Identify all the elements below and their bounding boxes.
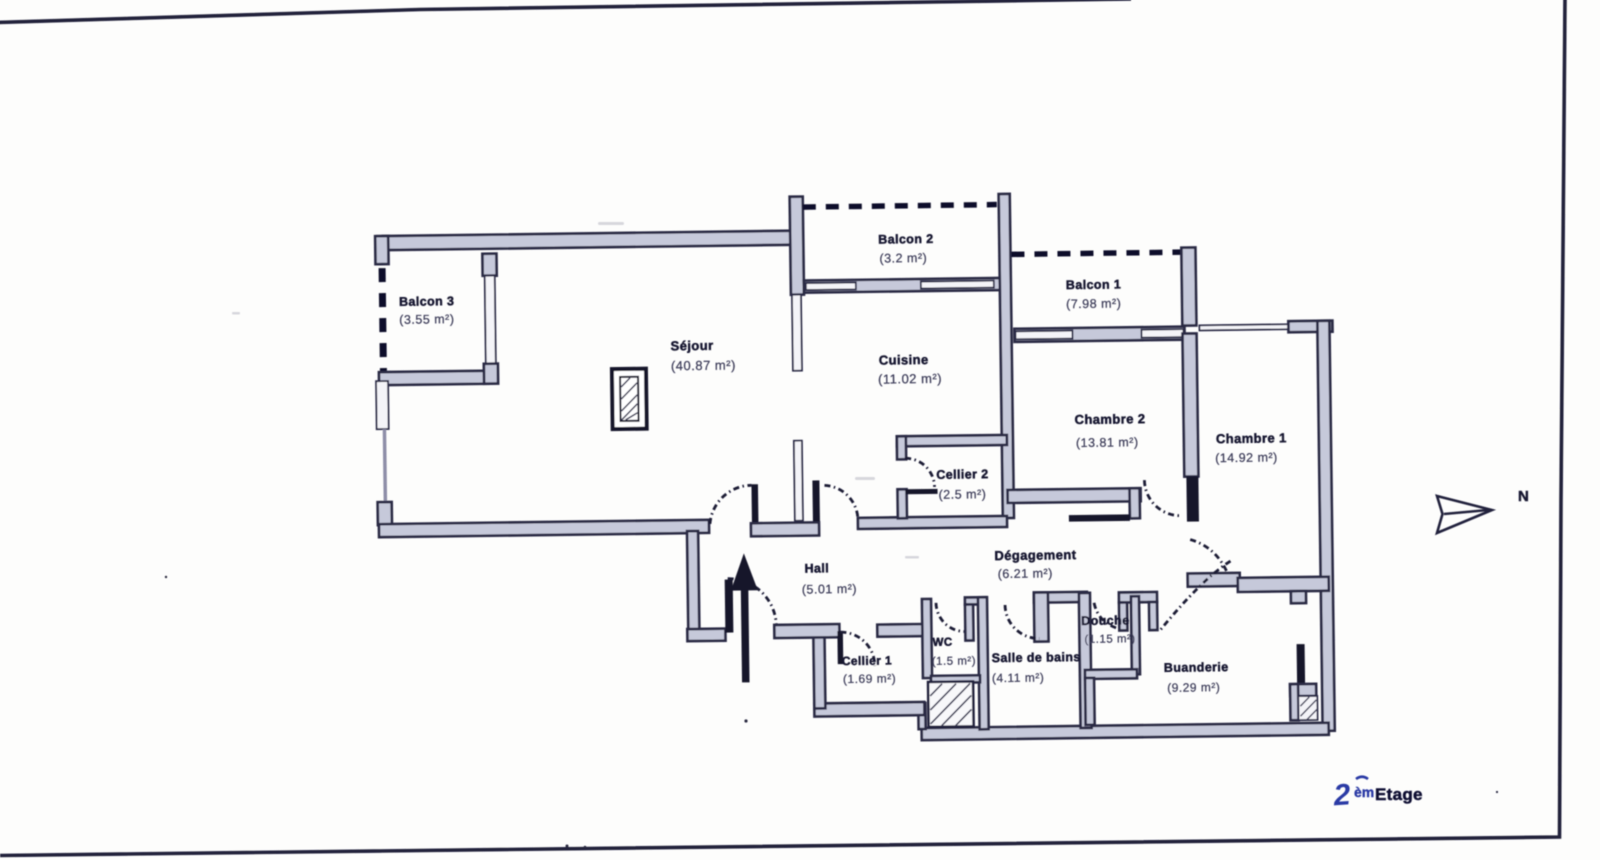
svg-text:(1.5 m²): (1.5 m²) — [932, 655, 976, 668]
svg-text:Cuisine: Cuisine — [879, 352, 929, 368]
svg-text:Cellier 1: Cellier 1 — [842, 653, 892, 668]
svg-text:(7.98 m²): (7.98 m²) — [1066, 296, 1121, 311]
svg-text:èm: èm — [1354, 784, 1374, 800]
svg-text:(11.02 m²): (11.02 m²) — [878, 371, 942, 387]
svg-text:(4.11 m²): (4.11 m²) — [992, 670, 1044, 685]
svg-text:WC: WC — [932, 637, 952, 649]
svg-text:Chambre 1: Chambre 1 — [1216, 430, 1287, 446]
svg-text:(2.5 m²): (2.5 m²) — [939, 487, 987, 502]
svg-text:Séjour: Séjour — [671, 338, 714, 354]
svg-text:Cellier 2: Cellier 2 — [936, 467, 988, 482]
svg-text:(3.55 m²): (3.55 m²) — [399, 312, 454, 327]
svg-text:(5.01 m²): (5.01 m²) — [802, 582, 857, 597]
svg-text:(40.87 m²): (40.87 m²) — [671, 357, 736, 373]
svg-text:Balcon 3: Balcon 3 — [399, 294, 454, 309]
svg-text:Balcon 2: Balcon 2 — [878, 232, 933, 247]
svg-text:(13.81 m²): (13.81 m²) — [1076, 435, 1139, 450]
svg-text:(9.29 m²): (9.29 m²) — [1167, 680, 1220, 695]
svg-text:Dégagement: Dégagement — [994, 547, 1076, 563]
svg-text:N: N — [1518, 488, 1529, 505]
svg-text:2: 2 — [1332, 778, 1352, 812]
svg-text:(1.69 m²): (1.69 m²) — [843, 671, 896, 686]
svg-text:Chambre 2: Chambre 2 — [1075, 411, 1146, 427]
svg-text:(1.15 m²): (1.15 m²) — [1084, 633, 1135, 646]
svg-text:(3.2 m²): (3.2 m²) — [879, 251, 927, 266]
svg-text:Etage: Etage — [1375, 785, 1423, 804]
svg-text:(6.21 m²): (6.21 m²) — [998, 566, 1053, 581]
svg-text:Douche: Douche — [1081, 613, 1129, 628]
svg-text:(14.92 m²): (14.92 m²) — [1215, 450, 1278, 465]
svg-text:Salle de bains: Salle de bains — [992, 650, 1081, 665]
svg-text:Balcon 1: Balcon 1 — [1066, 277, 1121, 292]
svg-text:Buanderie: Buanderie — [1164, 660, 1229, 675]
svg-text:Hall: Hall — [804, 561, 829, 575]
